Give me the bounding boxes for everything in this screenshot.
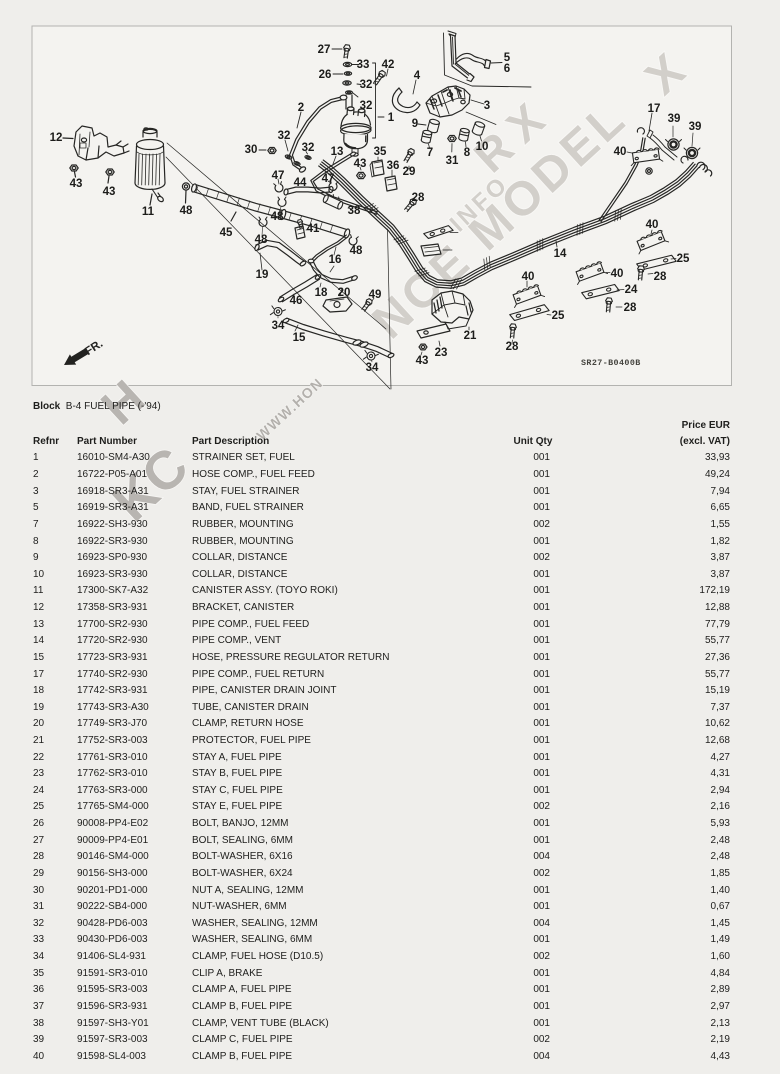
svg-text:17: 17	[648, 103, 661, 115]
svg-text:43: 43	[416, 355, 429, 367]
svg-text:3: 3	[484, 100, 490, 112]
svg-text:8: 8	[464, 147, 471, 159]
svg-text:48: 48	[255, 234, 268, 246]
svg-text:39: 39	[689, 121, 702, 133]
svg-text:29: 29	[403, 166, 416, 178]
svg-text:21: 21	[464, 330, 477, 342]
svg-text:40: 40	[614, 146, 627, 158]
svg-text:47: 47	[272, 170, 285, 182]
svg-text:25: 25	[552, 310, 565, 322]
svg-text:34: 34	[272, 320, 285, 332]
svg-text:SR27-B0400B: SR27-B0400B	[581, 358, 641, 368]
svg-text:4: 4	[414, 70, 421, 82]
svg-text:32: 32	[302, 142, 315, 154]
svg-text:39: 39	[668, 113, 681, 125]
svg-text:1: 1	[388, 112, 395, 124]
svg-text:33: 33	[357, 59, 370, 71]
svg-text:28: 28	[654, 271, 667, 283]
svg-text:38: 38	[348, 205, 361, 217]
svg-text:32: 32	[360, 79, 373, 91]
svg-text:43: 43	[354, 158, 367, 170]
svg-text:13: 13	[331, 146, 344, 158]
svg-text:32: 32	[278, 130, 291, 142]
svg-text:48: 48	[350, 245, 363, 257]
svg-text:40: 40	[646, 219, 659, 231]
svg-text:48: 48	[180, 205, 193, 217]
svg-text:42: 42	[382, 59, 395, 71]
svg-text:9: 9	[412, 118, 418, 130]
svg-text:43: 43	[103, 186, 116, 198]
svg-text:35: 35	[374, 146, 387, 158]
svg-text:41: 41	[307, 223, 320, 235]
svg-text:15: 15	[293, 332, 306, 344]
svg-text:27: 27	[318, 44, 331, 56]
svg-text:31: 31	[446, 155, 459, 167]
svg-text:23: 23	[435, 347, 448, 359]
svg-text:40: 40	[522, 271, 535, 283]
svg-text:12: 12	[50, 132, 63, 144]
svg-text:16: 16	[329, 254, 342, 266]
svg-text:28: 28	[412, 192, 425, 204]
svg-text:7: 7	[427, 147, 433, 159]
svg-text:2: 2	[298, 102, 304, 114]
svg-text:44: 44	[294, 177, 307, 189]
svg-text:40: 40	[611, 268, 624, 280]
svg-text:14: 14	[554, 248, 567, 260]
svg-text:28: 28	[506, 341, 519, 353]
svg-text:19: 19	[256, 269, 269, 281]
svg-text:49: 49	[369, 289, 382, 301]
svg-text:10: 10	[476, 141, 489, 153]
svg-text:46: 46	[290, 295, 303, 307]
svg-text:26: 26	[319, 69, 332, 81]
svg-text:25: 25	[677, 253, 690, 265]
svg-text:28: 28	[624, 302, 637, 314]
svg-text:34: 34	[366, 362, 379, 374]
svg-text:11: 11	[142, 206, 155, 218]
svg-text:45: 45	[220, 227, 233, 239]
svg-text:43: 43	[70, 178, 83, 190]
svg-text:20: 20	[338, 287, 351, 299]
svg-text:18: 18	[315, 287, 328, 299]
svg-text:48: 48	[271, 211, 284, 223]
svg-text:24: 24	[625, 284, 638, 296]
svg-text:36: 36	[387, 160, 400, 172]
svg-text:47: 47	[322, 173, 335, 185]
svg-text:30: 30	[245, 144, 258, 156]
svg-text:32: 32	[360, 100, 373, 112]
svg-text:6: 6	[504, 63, 510, 75]
